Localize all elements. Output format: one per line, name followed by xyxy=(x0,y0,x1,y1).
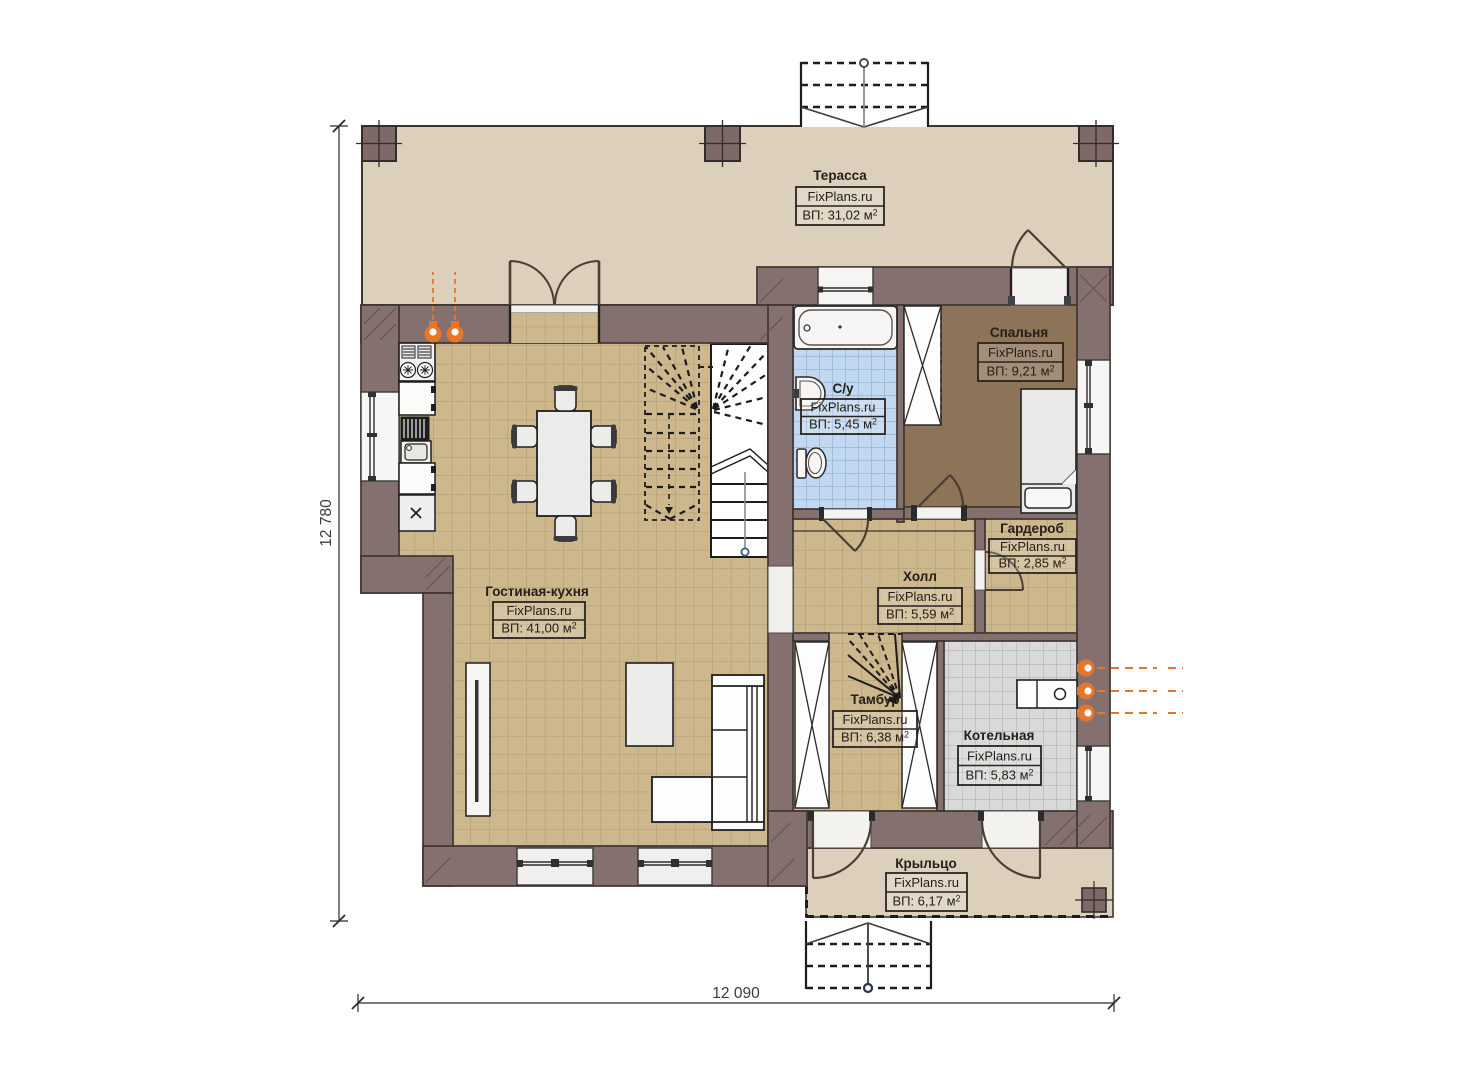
svg-text:Тамбур: Тамбур xyxy=(851,692,900,707)
svg-text:ВП: 5,83 м2: ВП: 5,83 м2 xyxy=(965,768,1033,783)
svg-text:ВП: 31,02 м2: ВП: 31,02 м2 xyxy=(802,208,877,223)
svg-text:Спальня: Спальня xyxy=(990,325,1048,340)
svg-text:ВП: 6,38 м2: ВП: 6,38 м2 xyxy=(841,730,909,745)
svg-text:ВП: 6,17 м2: ВП: 6,17 м2 xyxy=(892,894,960,909)
svg-text:FixPlans.ru: FixPlans.ru xyxy=(988,345,1053,360)
svg-text:ВП: 5,59 м2: ВП: 5,59 м2 xyxy=(886,607,954,622)
svg-text:Холл: Холл xyxy=(903,569,937,584)
svg-text:ВП: 41,00 м2: ВП: 41,00 м2 xyxy=(501,621,576,636)
svg-text:FixPlans.ru: FixPlans.ru xyxy=(1000,539,1065,554)
svg-text:FixPlans.ru: FixPlans.ru xyxy=(887,589,952,604)
svg-text:FixPlans.ru: FixPlans.ru xyxy=(807,189,872,204)
svg-text:ВП: 2,85 м2: ВП: 2,85 м2 xyxy=(998,556,1066,571)
svg-text:Котельная: Котельная xyxy=(964,728,1035,743)
svg-text:FixPlans.ru: FixPlans.ru xyxy=(894,875,959,890)
svg-text:FixPlans.ru: FixPlans.ru xyxy=(810,400,875,415)
svg-text:Крыльцо: Крыльцо xyxy=(895,856,956,871)
svg-text:FixPlans.ru: FixPlans.ru xyxy=(967,749,1032,764)
svg-text:ВП: 9,21 м2: ВП: 9,21 м2 xyxy=(986,364,1054,379)
svg-text:12 090: 12 090 xyxy=(712,985,760,1002)
svg-text:FixPlans.ru: FixPlans.ru xyxy=(842,712,907,727)
svg-text:FixPlans.ru: FixPlans.ru xyxy=(506,603,571,618)
svg-text:Гардероб: Гардероб xyxy=(1000,521,1064,536)
svg-text:Гостиная-кухня: Гостиная-кухня xyxy=(485,584,588,599)
svg-text:12 780: 12 780 xyxy=(318,499,335,547)
svg-text:С/у: С/у xyxy=(832,381,854,396)
svg-text:Терасса: Терасса xyxy=(813,168,867,183)
svg-text:ВП: 5,45 м2: ВП: 5,45 м2 xyxy=(809,417,877,432)
